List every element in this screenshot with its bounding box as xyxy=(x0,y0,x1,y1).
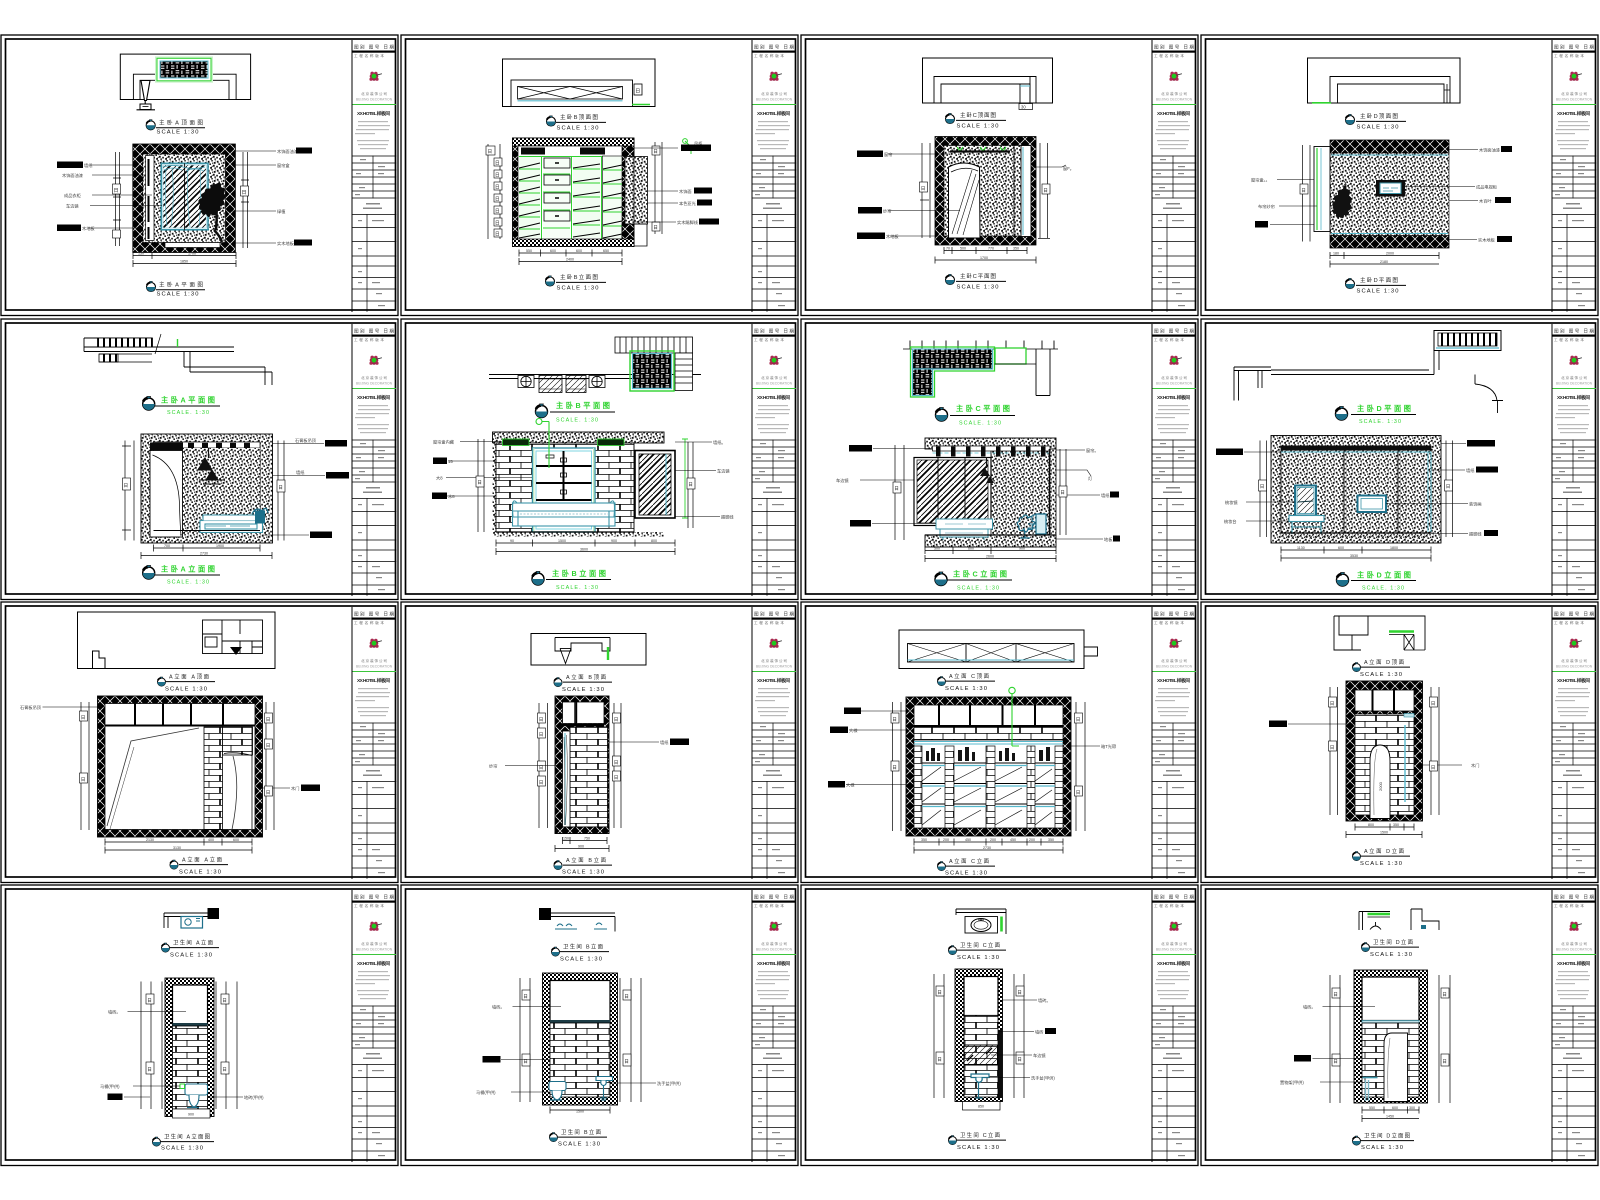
svg-text:1700: 1700 xyxy=(980,256,988,260)
svg-text:日: 日 xyxy=(114,188,119,194)
svg-text:2400: 2400 xyxy=(566,258,574,262)
svg-text:梳妆镜: 梳妆镜 xyxy=(1225,499,1238,506)
svg-text:800: 800 xyxy=(651,539,657,543)
svg-text:SCALE 1:30: SCALE 1:30 xyxy=(957,955,999,961)
svg-text:2730: 2730 xyxy=(983,846,991,850)
svg-text:600: 600 xyxy=(576,249,582,253)
svg-text:梳妆台: 梳妆台 xyxy=(1224,518,1237,525)
svg-text:马桶(甲供): 马桶(甲供) xyxy=(100,1083,120,1090)
svg-text:150: 150 xyxy=(138,252,144,256)
svg-text:600: 600 xyxy=(1338,546,1344,550)
svg-text:墙纸: 墙纸 xyxy=(296,469,305,476)
svg-text:SCALE 1:30: SCALE 1:30 xyxy=(557,286,599,292)
svg-text:900: 900 xyxy=(611,539,617,543)
svg-text:SCALE 1:30: SCALE 1:30 xyxy=(562,687,604,693)
svg-text:SCALE 1:30: SCALE 1:30 xyxy=(161,1146,203,1152)
svg-text:200: 200 xyxy=(990,838,996,842)
svg-text:主卧C顶面图: 主卧C顶面图 xyxy=(960,111,996,119)
svg-text:车边镜: 车边镜 xyxy=(717,468,730,475)
svg-text:SCALE 1:30: SCALE 1:30 xyxy=(1357,125,1399,131)
svg-text:实木踢脚线: 实木踢脚线 xyxy=(677,219,699,226)
svg-text:木饰面油漆: 木饰面油漆 xyxy=(62,172,83,179)
svg-text:卫生间 C立面: 卫生间 C立面 xyxy=(960,941,1001,949)
svg-text:SCALE. 1:30: SCALE. 1:30 xyxy=(556,585,598,591)
svg-text:车边镜: 车边镜 xyxy=(1033,1052,1046,1059)
svg-text:卫生间 A立面: 卫生间 A立面 xyxy=(173,939,214,947)
svg-text:窗F。: 窗F。 xyxy=(1063,165,1074,172)
svg-text:卫生间 D立面: 卫生间 D立面 xyxy=(1373,938,1414,946)
svg-text:A立面 D立面: A立面 D立面 xyxy=(1364,847,1405,855)
svg-text:SCALE. 1:30: SCALE. 1:30 xyxy=(556,418,598,424)
svg-text:15: 15 xyxy=(448,459,453,464)
svg-text:600: 600 xyxy=(1392,1106,1398,1110)
svg-text:SCALE 1:30: SCALE 1:30 xyxy=(957,1145,999,1151)
svg-text:300: 300 xyxy=(1409,1106,1415,1110)
svg-text:800: 800 xyxy=(1368,823,1374,827)
svg-text:350: 350 xyxy=(921,838,927,842)
svg-text:3530: 3530 xyxy=(1350,554,1358,558)
svg-text:3130: 3130 xyxy=(173,846,181,850)
svg-text:400: 400 xyxy=(208,838,214,842)
svg-text:卫生间 C立面: 卫生间 C立面 xyxy=(960,1131,1001,1139)
svg-text:墙纸: 墙纸 xyxy=(84,162,93,169)
svg-text:绿植: 绿植 xyxy=(277,208,285,215)
svg-text:日: 日 xyxy=(242,190,247,196)
svg-text:3600: 3600 xyxy=(580,548,588,552)
svg-text:750: 750 xyxy=(584,837,590,841)
svg-text:马桶(甲供): 马桶(甲供) xyxy=(476,1089,496,1096)
svg-text:实木地板: 实木地板 xyxy=(277,240,295,247)
svg-text:窗帘盒内藏: 窗帘盒内藏 xyxy=(433,439,455,446)
svg-text:石膏板吊顶: 石膏板吊顶 xyxy=(20,704,42,711)
svg-text:SCALE 1:30: SCALE 1:30 xyxy=(1370,952,1412,958)
svg-text:洗手盆(甲供): 洗手盆(甲供) xyxy=(657,1080,681,1087)
svg-text:1450: 1450 xyxy=(1386,1115,1394,1119)
svg-text:车边镜: 车边镜 xyxy=(836,477,849,484)
svg-text:墙纸: 墙纸 xyxy=(1101,492,1110,499)
svg-text:SCALE. 1:30: SCALE. 1:30 xyxy=(959,421,1001,427)
svg-text:550: 550 xyxy=(526,249,532,253)
svg-text:350: 350 xyxy=(1013,247,1019,251)
svg-text:2730: 2730 xyxy=(200,552,208,556)
svg-text:地砖(甲供): 地砖(甲供) xyxy=(244,1094,264,1101)
svg-text:SCALE 1:30: SCALE 1:30 xyxy=(157,130,199,136)
svg-text:SCALE. 1:30: SCALE. 1:30 xyxy=(1362,586,1404,592)
svg-text:大様: 大様 xyxy=(849,727,858,734)
svg-text:A立面 D顶面: A立面 D顶面 xyxy=(1364,658,1405,666)
svg-text:350: 350 xyxy=(1048,838,1054,842)
svg-text:SCALE 1:30: SCALE 1:30 xyxy=(1360,861,1402,867)
svg-text:本色亚光: 本色亚光 xyxy=(679,200,696,207)
svg-text:200: 200 xyxy=(943,838,949,842)
svg-text:SCALE 1:30: SCALE 1:30 xyxy=(558,1142,600,1148)
svg-text:木地板: 木地板 xyxy=(82,225,95,232)
svg-text:SCALE. 1:30: SCALE. 1:30 xyxy=(1359,419,1401,425)
svg-text:实木地板: 实木地板 xyxy=(1478,237,1496,244)
svg-text:A立面 A顶面: A立面 A顶面 xyxy=(169,673,210,681)
svg-text:踢脚线: 踢脚线 xyxy=(1469,531,1482,538)
svg-text:SCALE. 1:30: SCALE. 1:30 xyxy=(167,580,209,586)
svg-text:SCALE 1:30: SCALE 1:30 xyxy=(1360,672,1402,678)
svg-text:窗帘: 窗帘 xyxy=(884,151,892,158)
svg-text:SCALE. 1:30: SCALE. 1:30 xyxy=(957,586,999,592)
svg-text:2600: 2600 xyxy=(986,555,994,559)
svg-text:SCALE 1:30: SCALE 1:30 xyxy=(957,124,999,130)
svg-text:SCALE 1:30: SCALE 1:30 xyxy=(557,126,599,132)
svg-text:成品衣柜: 成品衣柜 xyxy=(64,192,81,199)
svg-text:200: 200 xyxy=(1029,838,1035,842)
svg-text:墙纸。: 墙纸。 xyxy=(713,439,726,446)
svg-text:墙砖。: 墙砖。 xyxy=(1038,997,1051,1004)
svg-text:770: 770 xyxy=(988,247,994,251)
svg-text:A立面 B立面: A立面 B立面 xyxy=(566,856,607,864)
svg-text:置物架(甲供): 置物架(甲供) xyxy=(1280,1079,1304,1086)
svg-text:700: 700 xyxy=(164,544,170,548)
svg-text:石膏板吊顶: 石膏板吊顶 xyxy=(295,437,317,444)
svg-text:木饰面: 木饰面 xyxy=(679,188,692,195)
svg-text:30: 30 xyxy=(1021,105,1026,110)
svg-text:墙砖: 墙砖 xyxy=(1035,1029,1043,1036)
svg-text:踢脚线: 踢脚线 xyxy=(721,514,734,521)
svg-text:A立面 A立面: A立面 A立面 xyxy=(182,856,223,864)
svg-text:木地板: 木地板 xyxy=(886,233,899,240)
svg-text:木8: 木8 xyxy=(448,493,455,500)
svg-text:墙纸: 墙纸 xyxy=(1466,467,1475,474)
svg-text:450: 450 xyxy=(1010,838,1016,842)
svg-text:70: 70 xyxy=(946,247,950,251)
svg-text:SCALE. 1:30: SCALE. 1:30 xyxy=(167,410,209,416)
svg-text:900: 900 xyxy=(578,845,584,849)
svg-text:木饰面油漆: 木饰面油漆 xyxy=(1479,147,1500,154)
svg-text:墙砖。: 墙砖。 xyxy=(108,1009,121,1016)
svg-text:SCALE 1:30: SCALE 1:30 xyxy=(562,870,604,876)
svg-text:成品电视柜: 成品电视柜 xyxy=(1476,184,1497,191)
svg-text:SCALE 1:30: SCALE 1:30 xyxy=(1361,1145,1403,1151)
svg-text:卫生间 B立面: 卫生间 B立面 xyxy=(563,943,604,951)
svg-text:大様: 大様 xyxy=(846,782,855,789)
svg-text:2180: 2180 xyxy=(1380,260,1388,264)
svg-text:900: 900 xyxy=(188,1113,194,1117)
svg-text:500: 500 xyxy=(960,247,966,251)
svg-text:SCALE 1:30: SCALE 1:30 xyxy=(957,285,999,291)
svg-text:SCALE 1:30: SCALE 1:30 xyxy=(179,870,221,876)
svg-text:600: 600 xyxy=(233,838,239,842)
svg-text:450: 450 xyxy=(965,838,971,842)
svg-text:550: 550 xyxy=(1369,1106,1375,1110)
svg-text:350: 350 xyxy=(1393,823,1399,827)
svg-text:日: 日 xyxy=(635,89,640,95)
svg-text:纱帘: 纱帘 xyxy=(489,763,497,770)
svg-text:SCALE 1:30: SCALE 1:30 xyxy=(170,953,212,959)
svg-text:A立面 C顶面: A立面 C顶面 xyxy=(949,672,990,680)
svg-text:窗帘盒。。: 窗帘盒。。 xyxy=(1251,177,1270,184)
svg-text:SCALE 1:30: SCALE 1:30 xyxy=(1357,289,1399,295)
svg-text:650: 650 xyxy=(603,249,609,253)
svg-text:850: 850 xyxy=(978,1105,984,1109)
svg-text:1850: 1850 xyxy=(180,260,188,264)
svg-text:SCALE 1:30: SCALE 1:30 xyxy=(165,687,207,693)
svg-text:1500: 1500 xyxy=(576,1110,584,1114)
svg-text:2130: 2130 xyxy=(146,838,154,842)
svg-text:墙砖。: 墙砖。 xyxy=(1303,1004,1316,1011)
svg-text:SCALE 1:30: SCALE 1:30 xyxy=(945,871,987,877)
svg-text:SCALE 1:30: SCALE 1:30 xyxy=(945,686,987,692)
svg-text:900: 900 xyxy=(1019,547,1025,551)
svg-text:暗T光帶: 暗T光帶 xyxy=(1101,743,1116,750)
svg-text:卫生间 D立面图: 卫生间 D立面图 xyxy=(1364,1132,1410,1140)
svg-text:2000: 2000 xyxy=(1378,781,1383,791)
svg-text:500: 500 xyxy=(934,547,940,551)
svg-text:150: 150 xyxy=(563,837,569,841)
svg-text:1500: 1500 xyxy=(558,539,566,543)
svg-text:90: 90 xyxy=(510,539,514,543)
svg-text:卫生间 A立面图: 卫生间 A立面图 xyxy=(164,1133,210,1141)
svg-text:木饰面油漆: 木饰面油漆 xyxy=(277,148,298,155)
svg-text:180: 180 xyxy=(1333,252,1339,256)
svg-text:洗手盆(甲供): 洗手盆(甲供) xyxy=(1031,1075,1055,1082)
svg-text:1900: 1900 xyxy=(216,544,224,548)
svg-text:主卧C平面图: 主卧C平面图 xyxy=(960,272,996,280)
svg-text:墙砖。: 墙砖。 xyxy=(492,1004,505,1011)
svg-text:A立面 B顶面: A立面 B顶面 xyxy=(566,673,607,681)
svg-text:600: 600 xyxy=(550,249,556,253)
svg-text:大8: 大8 xyxy=(436,475,443,482)
svg-text:地板: 地板 xyxy=(1104,536,1113,543)
svg-text:木门: 木门 xyxy=(291,785,299,792)
svg-text:木门: 木门 xyxy=(1471,762,1479,769)
svg-text:SCALE 1:30: SCALE 1:30 xyxy=(157,292,199,298)
svg-text:车边镜: 车边镜 xyxy=(66,203,79,210)
svg-text:卫生间 B立面: 卫生间 B立面 xyxy=(561,1128,602,1136)
svg-text:窗帘。: 窗帘。 xyxy=(1086,447,1099,454)
svg-text:1130: 1130 xyxy=(1297,546,1305,550)
svg-text:1500: 1500 xyxy=(1380,831,1388,835)
svg-text:A立面 C立面: A立面 C立面 xyxy=(949,857,990,865)
svg-text:木百叶: 木百叶 xyxy=(1479,198,1492,205)
svg-text:装饰画: 装饰画 xyxy=(1469,501,1482,508)
svg-text:墙纸: 墙纸 xyxy=(660,739,669,746)
svg-text:2000: 2000 xyxy=(1386,252,1394,256)
svg-text:1800: 1800 xyxy=(1390,546,1398,550)
svg-text:纱帘: 纱帘 xyxy=(883,208,891,215)
svg-text:窗帘盒: 窗帘盒 xyxy=(277,162,290,169)
svg-text:600: 600 xyxy=(968,547,974,551)
svg-text:SCALE 1:30: SCALE 1:30 xyxy=(560,957,602,963)
svg-text:布帘纱帘: 布帘纱帘 xyxy=(1258,203,1275,210)
svg-text:1700: 1700 xyxy=(188,252,196,256)
